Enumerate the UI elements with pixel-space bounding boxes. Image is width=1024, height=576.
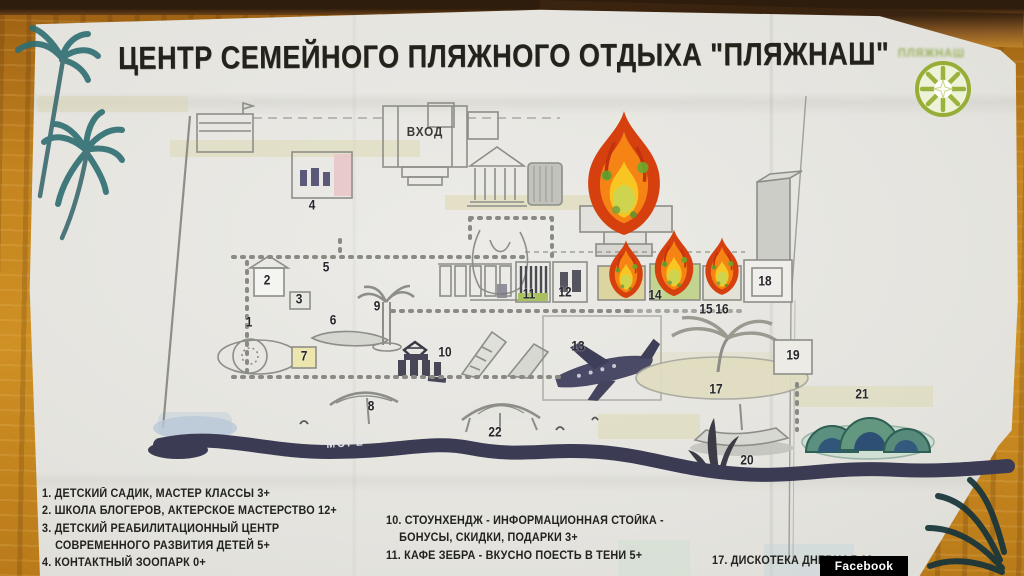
- map-marker-21: 21: [855, 387, 868, 402]
- fire-flames: [588, 111, 739, 298]
- map-marker-13: 13: [571, 339, 584, 354]
- map-title: ЦЕНТР СЕМЕЙНОГО ПЛЯЖНОГО ОТДЫХА "ПЛЯЖНАШ…: [118, 35, 883, 77]
- legend-item: 11. КАФЕ ЗЕБРА - ВКУСНО ПОЕСТЬ В ТЕНИ 5+: [386, 548, 696, 565]
- map-marker-9: 9: [374, 299, 381, 314]
- logo-text: ПЛЯЖНАШ: [898, 46, 1008, 60]
- map-marker-10: 10: [438, 345, 451, 360]
- map-marker-18: 18: [758, 274, 771, 289]
- map-marker-17: 17: [709, 382, 722, 397]
- photo-of-resort-map: ЦЕНТР СЕМЕЙНОГО ПЛЯЖНОГО ОТДЫХА "ПЛЯЖНАШ…: [0, 0, 1024, 576]
- palm-tree-illustration: [18, 28, 122, 238]
- entrance-label: ВХОД: [389, 124, 461, 139]
- map-marker-12: 12: [558, 285, 571, 300]
- legend-column-1: 1. ДЕТСКИЙ САДИК, МАСТЕР КЛАССЫ 3+2. ШКО…: [42, 486, 360, 572]
- small-flame-icon: [655, 230, 693, 296]
- map-marker-6: 6: [330, 313, 337, 328]
- map-marker-19: 19: [786, 348, 799, 363]
- legend-item: 4. КОНТАКТНЫЙ ЗООПАРК 0+: [42, 555, 360, 572]
- map-marker-8: 8: [368, 399, 375, 414]
- map-marker-2: 2: [264, 273, 271, 288]
- map-marker-1: 1: [246, 315, 253, 330]
- map-marker-3: 3: [296, 292, 303, 307]
- resort-logo-icon: [912, 58, 974, 120]
- facebook-watermark[interactable]: Facebook: [820, 556, 908, 576]
- map-marker-15: 15: [699, 302, 712, 317]
- map-marker-7: 7: [301, 349, 308, 364]
- map-marker-4: 4: [309, 198, 316, 213]
- map-marker-11: 11: [523, 287, 536, 302]
- legend-item: 10. СТОУНХЕНДЖ - ИНФОРМАЦИОННАЯ СТОЙКА -…: [386, 513, 696, 548]
- legend-item: 2. ШКОЛА БЛОГЕРОВ, АКТЕРСКОЕ МАСТЕРСТВО …: [42, 503, 360, 520]
- map-marker-20: 20: [740, 453, 753, 468]
- map-marker-14: 14: [648, 288, 661, 303]
- big-flame-icon: [588, 111, 660, 235]
- map-marker-5: 5: [323, 260, 330, 275]
- map-marker-22: 22: [488, 425, 501, 440]
- legend-item: 1. ДЕТСКИЙ САДИК, МАСТЕР КЛАССЫ 3+: [42, 486, 360, 503]
- legend-column-2: 10. СТОУНХЕНДЖ - ИНФОРМАЦИОННАЯ СТОЙКА -…: [386, 513, 696, 565]
- legend-item: 3. ДЕТСКИЙ РЕАБИЛИТАЦИОННЫЙ ЦЕНТР СОВРЕМ…: [42, 521, 360, 556]
- small-flame-icon: [705, 237, 738, 294]
- map-marker-16: 16: [715, 302, 728, 317]
